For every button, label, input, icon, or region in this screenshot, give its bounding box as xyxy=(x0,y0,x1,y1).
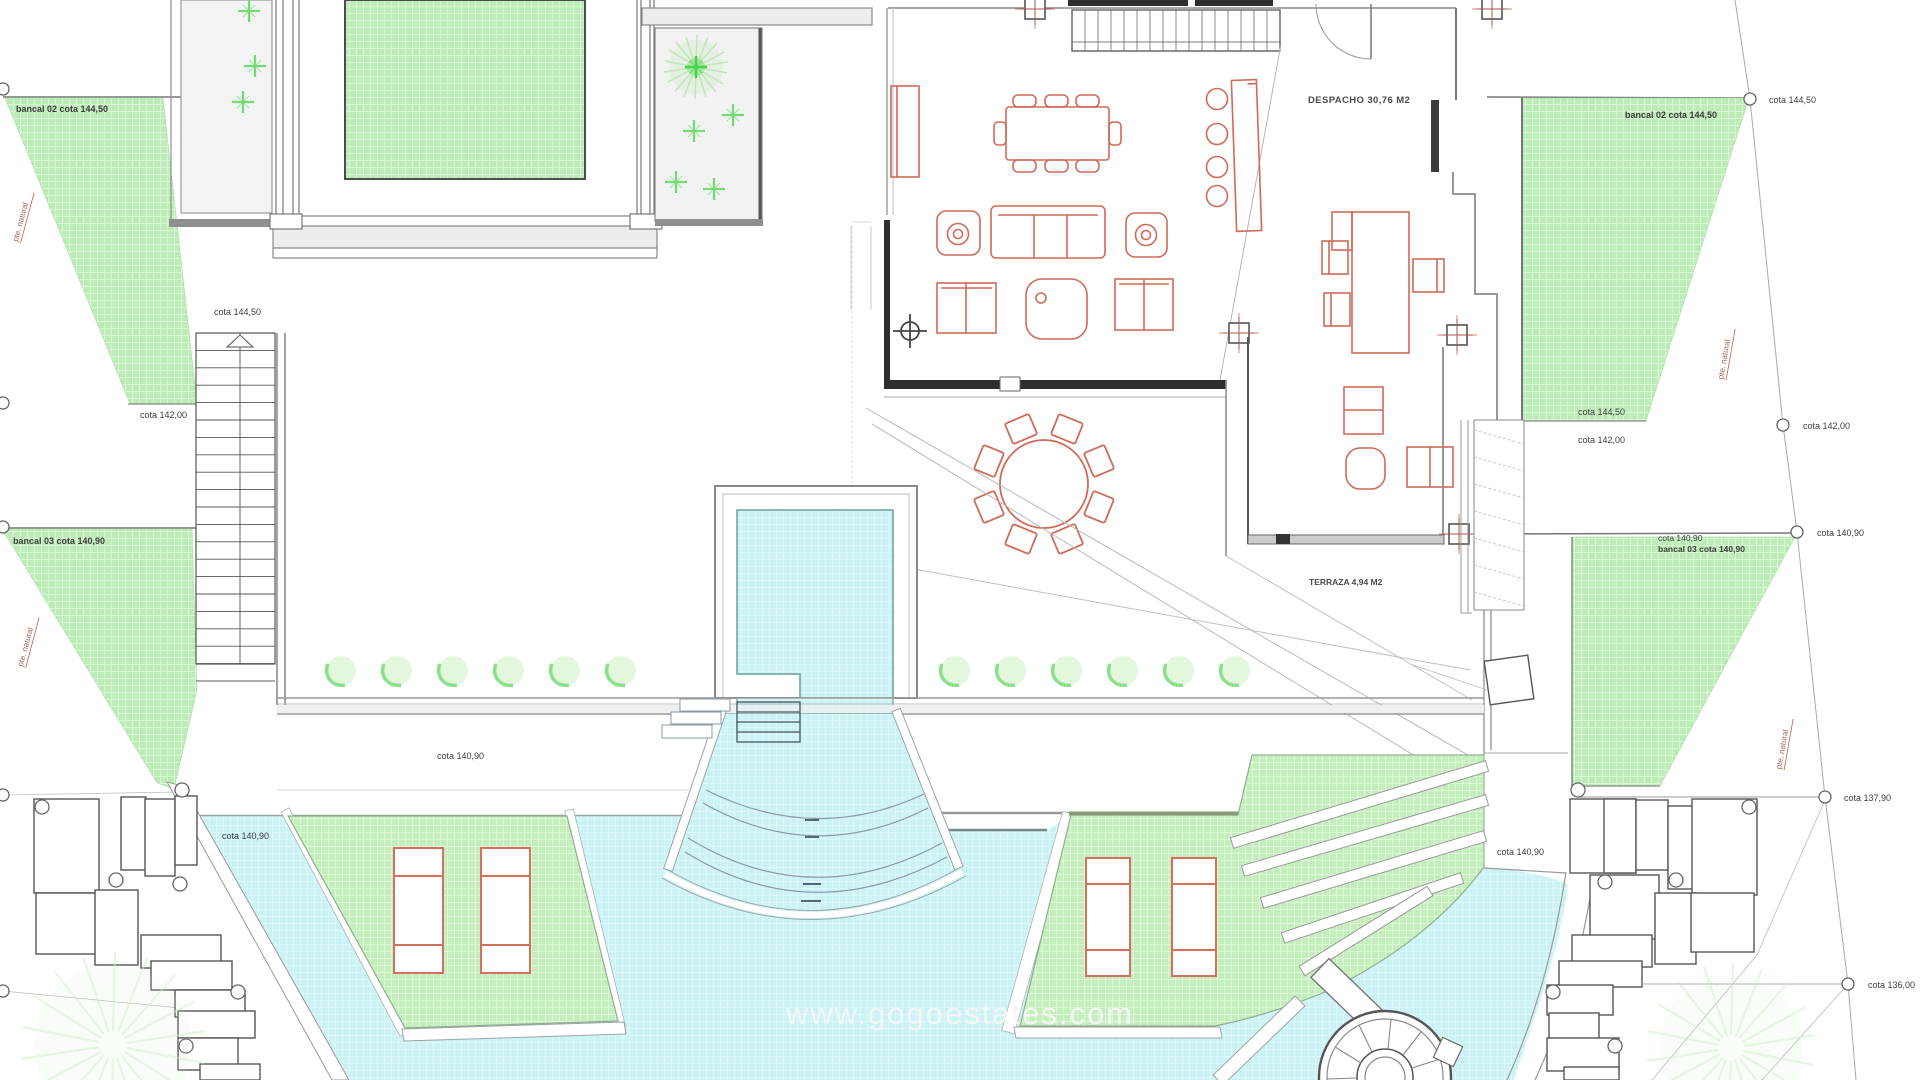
svg-text:cota 144,50: cota 144,50 xyxy=(1769,95,1816,105)
svg-text:cota 144,50: cota 144,50 xyxy=(214,307,261,317)
svg-text:bancal 02 cota 144,50: bancal 02 cota 144,50 xyxy=(1625,110,1717,120)
svg-text:bancal 03 cota 140,90: bancal 03 cota 140,90 xyxy=(1658,544,1745,554)
svg-text:cota 136,00: cota 136,00 xyxy=(1868,980,1915,990)
svg-text:cota 140,90: cota 140,90 xyxy=(1497,847,1544,857)
svg-text:www.gogoestates.com: www.gogoestates.com xyxy=(785,996,1134,1031)
svg-text:cota 142,00: cota 142,00 xyxy=(140,410,187,420)
svg-text:cota 140,90: cota 140,90 xyxy=(222,831,269,841)
svg-text:cota 144,50: cota 144,50 xyxy=(1578,407,1625,417)
svg-text:TERRAZA 4,94 M2: TERRAZA 4,94 M2 xyxy=(1309,577,1383,587)
svg-text:cota 140,90: cota 140,90 xyxy=(437,751,484,761)
svg-text:cota 142,00: cota 142,00 xyxy=(1578,435,1625,445)
svg-text:cota 140,90: cota 140,90 xyxy=(1658,533,1703,543)
svg-text:bancal 02 cota 144,50: bancal 02 cota 144,50 xyxy=(16,104,108,114)
svg-text:cota 137,90: cota 137,90 xyxy=(1844,793,1891,803)
svg-text:DESPACHO 30,76 M2: DESPACHO 30,76 M2 xyxy=(1308,95,1410,106)
svg-text:cota 140,90: cota 140,90 xyxy=(1817,528,1864,538)
svg-text:bancal 03 cota 140,90: bancal 03 cota 140,90 xyxy=(13,536,105,546)
svg-text:cota 142,00: cota 142,00 xyxy=(1803,421,1850,431)
